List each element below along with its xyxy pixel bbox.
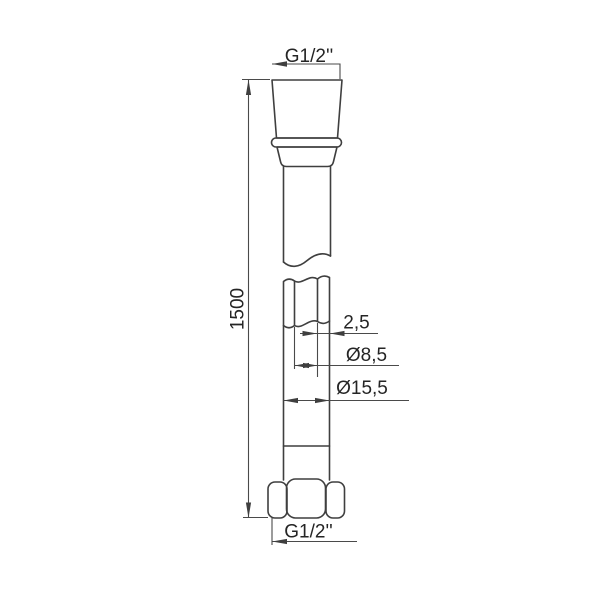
- bottom-thread-label: G1/2'': [284, 522, 332, 543]
- hex-nut: [268, 479, 345, 518]
- hose-technical-drawing: G1/2'' 1500 2,5 Ø8,5 Ø15,5 G1/2'': [0, 0, 600, 600]
- inner-diameter-arrow-right: [303, 363, 318, 368]
- top-cone-connector: [272, 80, 342, 138]
- hose-break-line-upper: [284, 254, 331, 266]
- length-label: 1500: [228, 288, 249, 330]
- length-arrow-bottom: [246, 503, 251, 519]
- wall-thickness-arrow-left: [303, 331, 318, 336]
- length-arrow-top: [246, 80, 251, 96]
- inner-diameter-label: Ø8,5: [346, 345, 387, 366]
- dimension-labels-group: G1/2'' 1500 2,5 Ø8,5 Ø15,5 G1/2'': [228, 46, 388, 543]
- outer-diameter-arrow-right: [315, 398, 330, 403]
- top-thread-label: G1/2'': [285, 46, 333, 67]
- cone-collar: [277, 147, 337, 167]
- hex-nut-center-facet: [287, 479, 326, 518]
- hex-nut-left-facet: [268, 482, 287, 518]
- outer-diameter-arrow-left: [284, 398, 299, 403]
- dimension-lines-group: [242, 64, 409, 545]
- wall-thickness-label: 2,5: [343, 313, 369, 334]
- hose-outline-group: [268, 80, 345, 518]
- bore-bottom-break-line: [295, 321, 318, 327]
- outer-diameter-label: Ø15,5: [336, 378, 388, 399]
- cross-section-left-wall: [284, 279, 295, 328]
- bore-top-break-line: [295, 278, 318, 283]
- drawing-canvas: G1/2'' 1500 2,5 Ø8,5 Ø15,5 G1/2'': [0, 0, 600, 600]
- hex-nut-right-facet: [326, 482, 345, 518]
- cone-ring: [272, 138, 342, 147]
- cross-section-right-wall: [318, 276, 330, 323]
